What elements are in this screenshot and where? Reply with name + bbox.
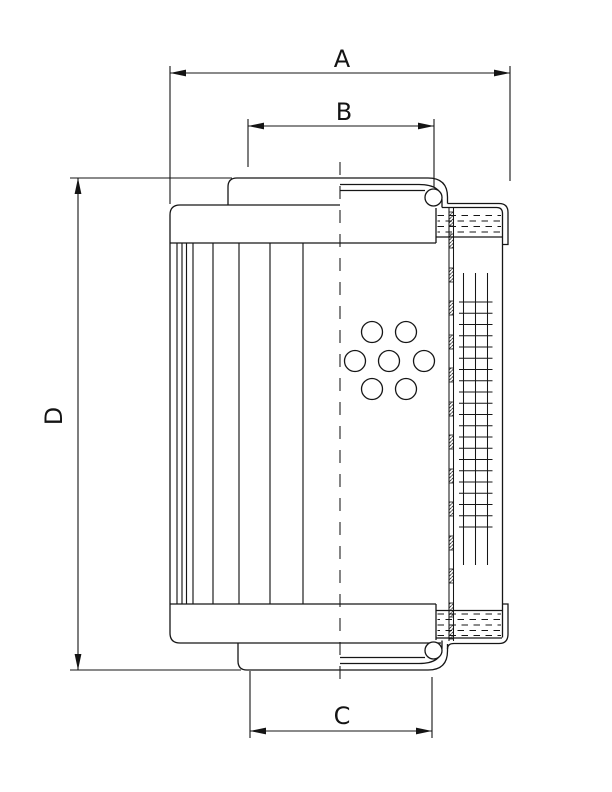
dim-c-arrow-left-icon [250,728,266,735]
bottom-cap-band-bottom-edge [170,633,441,643]
perforation-hole [362,322,383,343]
strip-hatch-block [449,234,454,248]
perforation-hole [414,351,435,372]
strip-hatch-block [449,402,454,416]
strip-hatch-block [449,625,454,639]
shell-top-flange-outer [448,204,509,245]
dimension-d-label: D [40,407,68,425]
strip-hatch-block [449,368,454,382]
drawing-sheet: A B C D [0,0,612,792]
filter-element-technical-drawing: A B C D [0,0,612,792]
strip-hatch-block [449,569,454,583]
top-cap-band-top-edge [170,205,340,215]
support-strip [449,208,454,641]
dimension-b: B [248,98,434,187]
dimension-a-label: A [334,45,351,73]
perforation-hole [396,379,417,400]
dimension-c-label: C [334,702,351,730]
strip-hatch-block [449,268,454,282]
dim-d-arrow-bottom-icon [75,654,82,670]
dim-c-arrow-right-icon [416,728,432,735]
strip-hatch-block [449,301,454,315]
top-end-cap [170,178,448,243]
dimension-d: D [40,178,241,670]
dim-d-arrow-top-icon [75,178,82,194]
dim-a-arrow-right-icon [494,70,510,77]
strip-hatch-block [449,502,454,516]
perforation-hole [362,379,383,400]
strip-hatch-block [449,536,454,550]
wire-mesh [459,273,493,565]
dim-b-arrow-right-icon [418,123,434,130]
bottom-end-cap [170,604,448,670]
filter-element [170,162,508,687]
strip-hatch-block [449,469,454,483]
dimension-c: C [250,671,432,738]
dim-a-arrow-left-icon [170,70,186,77]
perforation-holes [345,322,435,400]
perforation-hole [379,351,400,372]
perforation-hole [345,351,366,372]
strip-hatch-block [449,435,454,449]
pleated-media [177,243,303,604]
o-ring-bottom [425,642,442,659]
perforation-hole [396,322,417,343]
strip-hatch-block [449,335,454,349]
dimension-b-label: B [336,98,352,126]
dim-b-arrow-left-icon [248,123,264,130]
o-ring-top [425,189,442,206]
strip-hatch-block [449,212,454,226]
